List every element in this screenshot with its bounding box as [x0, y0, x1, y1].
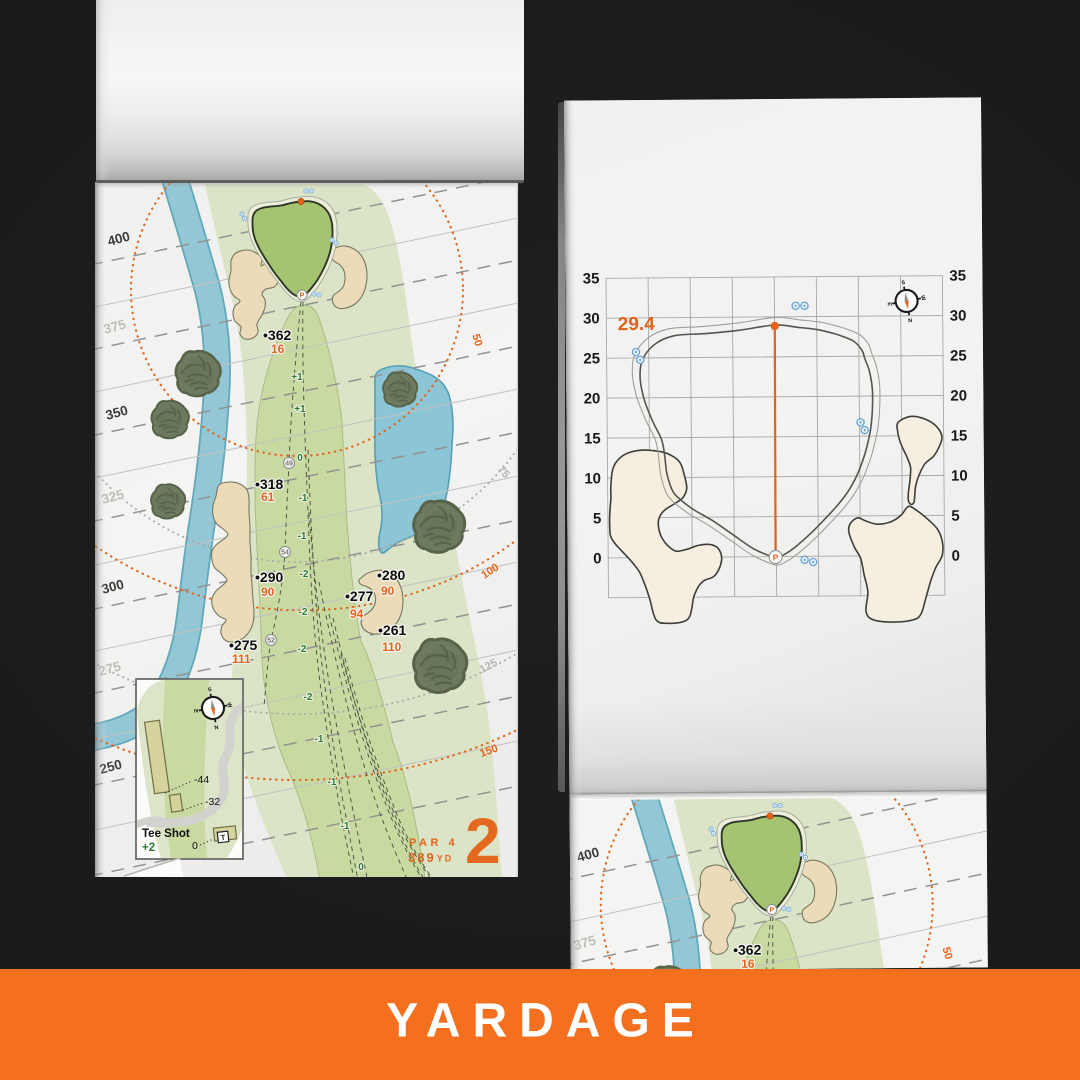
svg-text:110: 110	[382, 640, 402, 654]
svg-text:Tee Shot: Tee Shot	[142, 828, 190, 840]
svg-text:30: 30	[950, 307, 967, 324]
svg-text:16: 16	[271, 342, 285, 356]
svg-text:P: P	[773, 552, 779, 562]
svg-text:-1: -1	[341, 821, 350, 832]
svg-text:15: 15	[584, 430, 601, 447]
svg-text:+1: +1	[294, 404, 306, 415]
svg-text:20: 20	[584, 390, 601, 407]
svg-text:0: 0	[593, 550, 601, 567]
svg-text:-2: -2	[299, 607, 308, 618]
svg-text:•275: •275	[229, 637, 257, 653]
svg-text:30: 30	[583, 310, 600, 327]
svg-text:-1: -1	[298, 531, 307, 542]
svg-text:-44: -44	[194, 774, 209, 786]
svg-text:PAR 4: PAR 4	[409, 837, 458, 849]
svg-text:-32: -32	[205, 796, 220, 808]
svg-text:29.4: 29.4	[618, 314, 656, 335]
svg-text:20: 20	[950, 387, 967, 404]
svg-text:+2: +2	[142, 842, 155, 854]
svg-text:5: 5	[593, 510, 601, 527]
svg-text:0: 0	[192, 840, 198, 852]
svg-text:•362: •362	[263, 327, 291, 343]
svg-text:0: 0	[297, 453, 303, 464]
svg-text:•290: •290	[255, 569, 283, 585]
svg-text:•280: •280	[377, 567, 405, 583]
svg-text:90: 90	[261, 585, 275, 599]
svg-text:111: 111	[232, 652, 251, 666]
svg-text:•261: •261	[378, 622, 406, 638]
svg-text:5: 5	[951, 508, 959, 525]
svg-text:-1: -1	[299, 493, 308, 504]
svg-text:-2: -2	[300, 569, 309, 580]
svg-text:10: 10	[584, 470, 601, 487]
svg-text:61: 61	[261, 490, 275, 504]
svg-text:-2: -2	[298, 644, 307, 655]
svg-text:52: 52	[267, 638, 275, 645]
svg-text:0: 0	[952, 548, 960, 565]
svg-text:P: P	[300, 293, 305, 300]
svg-text:0: 0	[358, 862, 364, 873]
svg-text:-2: -2	[304, 692, 313, 703]
svg-text:54: 54	[281, 550, 289, 557]
svg-text:2: 2	[465, 805, 501, 877]
svg-text:35: 35	[949, 267, 966, 284]
svg-text:-1: -1	[328, 777, 337, 788]
svg-text:94: 94	[350, 607, 364, 621]
svg-text:+1: +1	[291, 372, 303, 383]
svg-text:10: 10	[951, 467, 968, 484]
svg-text:25: 25	[583, 350, 600, 367]
svg-text:49: 49	[285, 461, 293, 468]
svg-text:15: 15	[951, 427, 968, 444]
svg-text:25: 25	[950, 347, 967, 364]
svg-text:90: 90	[381, 584, 395, 598]
svg-text:•277: •277	[345, 588, 373, 604]
svg-text:-1: -1	[315, 734, 324, 745]
svg-text:35: 35	[583, 270, 600, 287]
